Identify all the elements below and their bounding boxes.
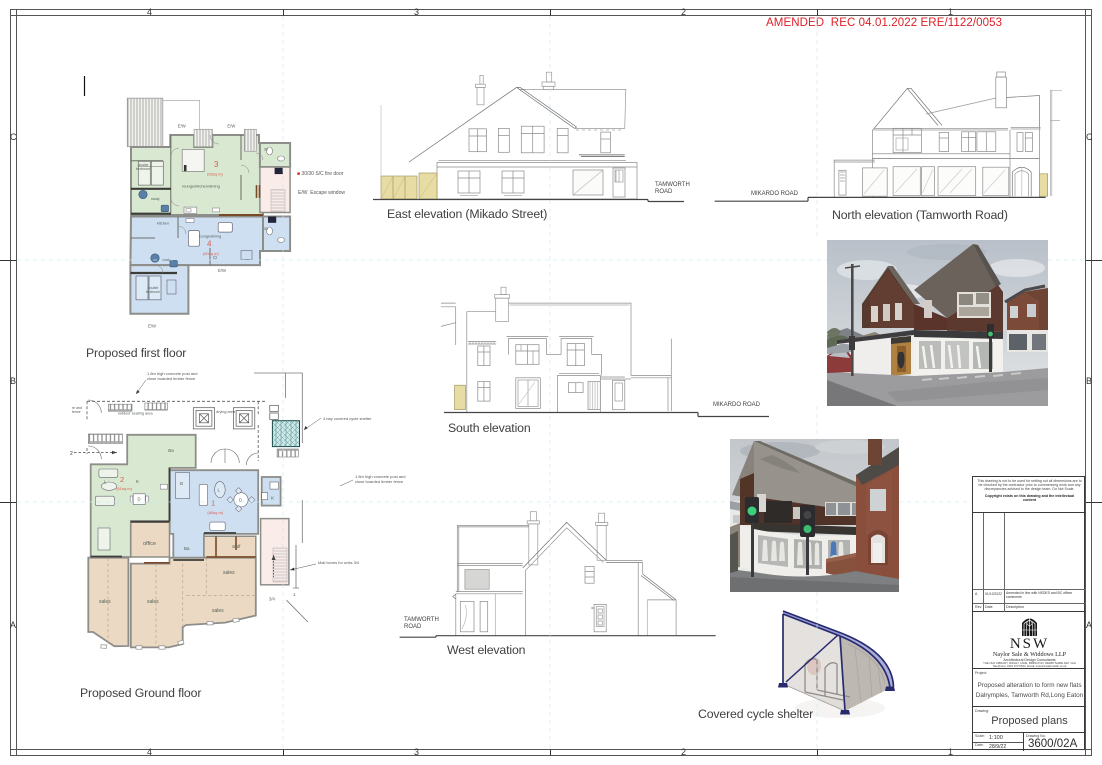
svg-text:(53sq m): (53sq m)	[207, 172, 223, 177]
svg-text:Sh: Sh	[264, 148, 268, 152]
svg-text:study: study	[151, 197, 160, 201]
svg-text:sales: sales	[212, 608, 224, 614]
svg-text:bedroom: bedroom	[146, 290, 160, 294]
svg-text:3/4: 3/4	[269, 597, 275, 602]
svg-text:3: 3	[214, 160, 219, 169]
svg-text:2: 2	[70, 451, 73, 457]
svg-text:E/W: E/W	[148, 324, 156, 329]
svg-text:E/W: E/W	[218, 268, 226, 273]
svg-text:1: 1	[293, 592, 296, 597]
svg-text:study: study	[162, 258, 171, 262]
svg-text:Sh: Sh	[264, 227, 268, 231]
svg-text:sales: sales	[99, 599, 111, 605]
svg-text:lounge/kitchen/dining: lounge/kitchen/dining	[182, 183, 220, 188]
svg-text:bedroom: bedroom	[136, 167, 150, 171]
svg-text:lounge/dining: lounge/dining	[199, 234, 222, 238]
svg-text:kitchen: kitchen	[157, 222, 169, 226]
svg-text:4: 4	[207, 240, 212, 249]
svg-text:E/W: E/W	[227, 123, 235, 128]
svg-text:E/W: E/W	[178, 123, 186, 128]
svg-text:sales: sales	[147, 599, 159, 605]
svg-text:(60sq m): (60sq m)	[203, 251, 219, 256]
